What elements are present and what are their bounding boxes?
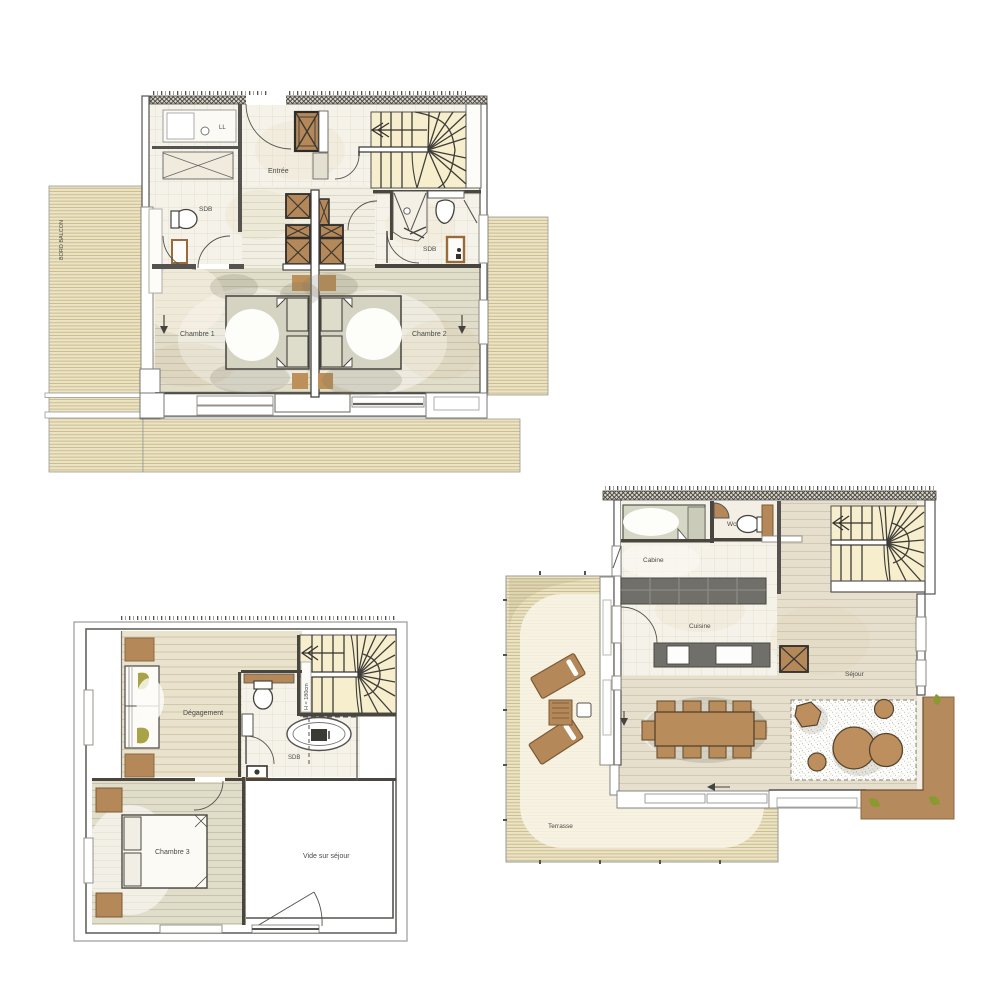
svg-text:Chambre 2: Chambre 2 xyxy=(412,331,447,338)
svg-text:Dégagement: Dégagement xyxy=(183,710,223,717)
svg-text:BORD BALCON: BORD BALCON xyxy=(59,220,65,260)
svg-text:Cuisine: Cuisine xyxy=(689,623,711,630)
svg-text:H = 180cm: H = 180cm xyxy=(304,683,310,710)
svg-text:Séjour: Séjour xyxy=(845,671,865,678)
svg-text:Cabine: Cabine xyxy=(643,557,664,564)
svg-text:LL: LL xyxy=(219,125,226,131)
svg-text:Wc: Wc xyxy=(727,521,737,528)
svg-text:Chambre 3: Chambre 3 xyxy=(155,849,190,856)
svg-text:Chambre 1: Chambre 1 xyxy=(180,331,215,338)
svg-text:SDB: SDB xyxy=(288,755,300,761)
svg-text:Vide sur séjour: Vide sur séjour xyxy=(303,853,350,860)
svg-text:SDB: SDB xyxy=(423,246,436,253)
svg-text:Entrée: Entrée xyxy=(268,168,289,175)
svg-text:SDB: SDB xyxy=(199,206,212,213)
svg-text:Terrasse: Terrasse xyxy=(548,823,573,830)
